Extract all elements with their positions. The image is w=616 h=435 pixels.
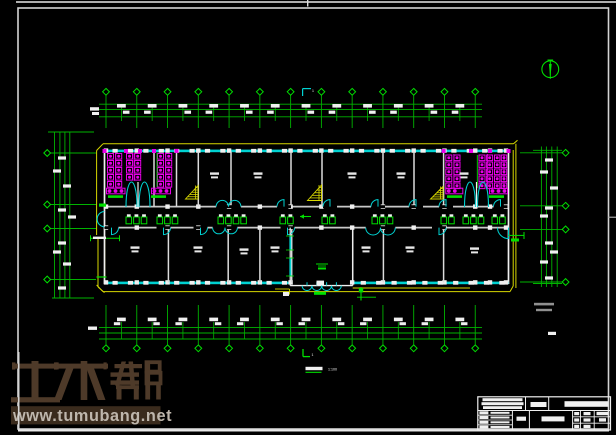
svg-text:1:100: 1:100 — [328, 368, 337, 372]
svg-text:1: 1 — [312, 89, 314, 93]
svg-text:1: 1 — [312, 353, 314, 357]
svg-text:www.tumubang.net: www.tumubang.net — [12, 407, 172, 425]
